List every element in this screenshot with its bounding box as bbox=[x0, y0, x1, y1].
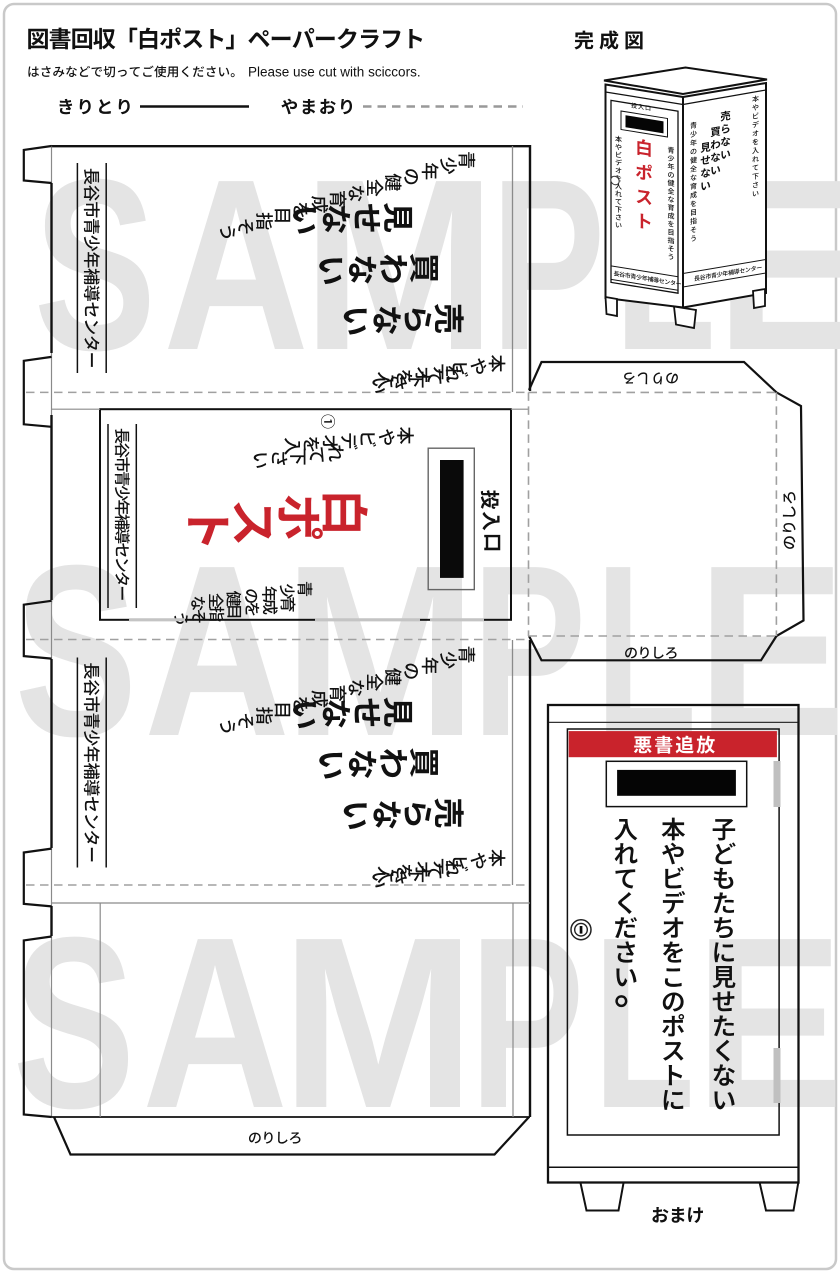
svg-text:Please use cut with sciccors.: Please use cut with sciccors. bbox=[248, 65, 421, 80]
svg-text:M: M bbox=[281, 887, 476, 1160]
svg-text:S: S bbox=[15, 514, 138, 787]
svg-text:A: A bbox=[163, 129, 309, 401]
svg-text:A: A bbox=[144, 515, 290, 787]
svg-text:E: E bbox=[694, 886, 840, 1159]
svg-text:P: P bbox=[491, 128, 605, 401]
svg-text:S: S bbox=[13, 886, 136, 1159]
svg-text:L: L bbox=[593, 887, 695, 1159]
svg-text:A: A bbox=[142, 887, 288, 1159]
